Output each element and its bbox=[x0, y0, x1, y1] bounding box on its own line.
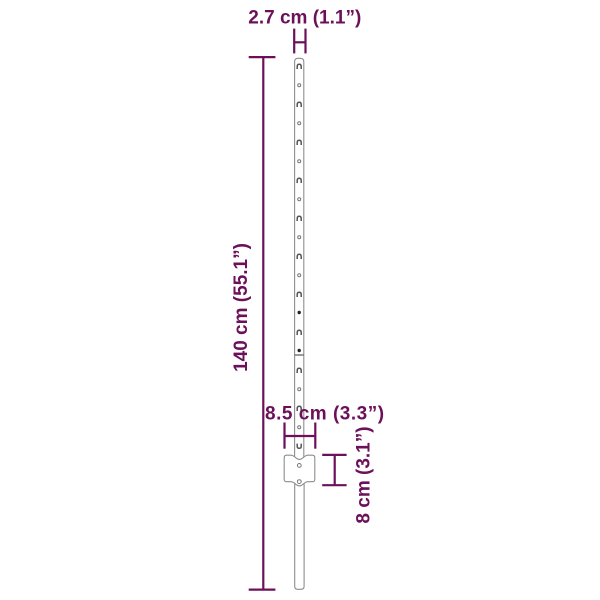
svg-text:140 cm (55.1”): 140 cm (55.1”) bbox=[231, 243, 252, 372]
svg-text:2.7 cm (1.1”): 2.7 cm (1.1”) bbox=[248, 8, 361, 29]
svg-text:8 cm (3.1”): 8 cm (3.1”) bbox=[353, 426, 374, 523]
svg-text:8.5 cm (3.3”): 8.5 cm (3.3”) bbox=[265, 404, 385, 425]
